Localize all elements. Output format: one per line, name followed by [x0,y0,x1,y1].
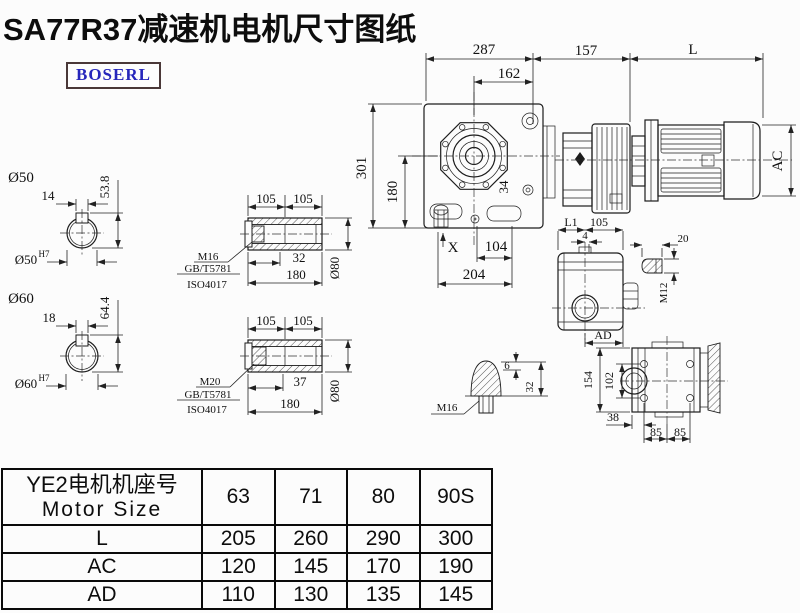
shaft50-label: Ø50 [8,170,34,186]
thread-M16-breather: M16 [437,402,458,414]
standard-gb-bottom: GB/T5781 [184,389,231,401]
dim-L: L [688,42,697,58]
motor-assembly-view [555,120,792,213]
row-label-AD: AD [2,581,202,609]
table-row-AC: AC 120 145 170 190 [2,553,492,581]
x-plug-bolt [434,205,448,227]
dim-18: 18 [43,310,56,325]
row-label-AC: AC [2,553,202,581]
dim-d80-top: Ø80 [327,257,342,279]
dim-154: 154 [581,371,595,389]
shaft-section-d60: Ø60 18 64.4 Ø60 H7 [8,291,123,391]
header-size-71: 71 [275,469,348,525]
gearbox-rear-view: 154 102 38 85 85 [581,336,728,443]
shaft-section-d50: Ø50 14 53.8 Ø50 H7 [8,170,123,267]
cell-AD-80: 135 [347,581,420,609]
drawing-sheet: SA77R37减速机电机尺寸图纸 BOSERL [0,0,800,613]
dim-34: 34 [496,180,511,194]
dim-301: 301 [354,157,370,180]
dim-105-side: 105 [590,215,608,229]
dim-105b-bottom: 105 [293,313,313,328]
dim-64-4: 64.4 [97,296,112,319]
cell-L-80: 290 [347,525,420,553]
main-view-dimensions: 287 162 157 L 301 180 34 X 104 204 [354,42,796,288]
cell-AC-71: 145 [275,553,348,581]
header-motor-size: YE2电机机座号 Motor Size [2,469,202,525]
standard-gb-top: GB/T5781 [184,263,231,275]
motor-dimension-table: YE2电机机座号 Motor Size 63 71 80 90S L 205 2… [1,468,493,610]
dim-20: 20 [678,233,690,245]
bore50-tolerance: H7 [39,249,50,259]
dim-14: 14 [42,188,56,203]
dim-4: 4 [582,230,588,242]
dim-180-top: 180 [286,267,306,282]
marker-x: X [448,240,459,256]
gearbox-front-view [412,92,560,246]
dim-AD: AD [594,328,612,342]
dim-85b: 85 [674,425,686,439]
standard-iso-bottom: ISO4017 [187,404,227,416]
dim-180: 180 [385,181,401,204]
bore60-label: Ø60 [15,376,37,391]
dim-162: 162 [498,66,521,82]
diamond-mark [575,152,585,166]
cell-L-63: 205 [202,525,275,553]
table-row-L: L 205 260 290 300 [2,525,492,553]
cell-L-71: 260 [275,525,348,553]
motor-body [645,120,760,201]
cell-AC-80: 170 [347,553,420,581]
dim-37-bottom: 37 [294,374,308,389]
bolt-label-m16: M16 [198,251,219,263]
dim-d80-bottom: Ø80 [327,380,342,402]
bore60-tolerance: H7 [39,373,50,383]
dim-L1: L1 [564,215,577,229]
standard-iso-top: ISO4017 [187,279,227,291]
dim-105a-top: 105 [256,191,276,206]
dim-AC: AC [770,151,786,172]
table-row-AD: AD 110 130 135 145 [2,581,492,609]
dim-32-top: 32 [293,250,306,265]
dim-104: 104 [485,239,508,255]
header-size-63: 63 [202,469,275,525]
dim-157: 157 [575,43,598,59]
header-motor-size-cn: YE2电机机座号 [3,472,201,497]
bore50-label: Ø50 [15,252,37,267]
gearbox-side-view: L1 105 4 AD [552,215,645,347]
dim-38: 38 [607,410,619,424]
dim-102: 102 [602,372,616,390]
cell-L-90s: 300 [420,525,493,553]
header-size-80: 80 [347,469,420,525]
plug-detail-view: 20 M12 [630,233,689,303]
dim-6: 6 [504,360,510,372]
dim-204: 204 [463,267,486,283]
dim-85a: 85 [650,425,662,439]
shaft60-label: Ø60 [8,291,34,307]
cell-AD-71: 130 [275,581,348,609]
dim-32-breather: 32 [524,382,536,393]
bolt-label-m20: M20 [200,376,221,388]
header-motor-size-en: Motor Size [3,498,201,522]
table-header-row: YE2电机机座号 Motor Size 63 71 80 90S [2,469,492,525]
row-label-L: L [2,525,202,553]
hollow-shaft-top: 105 105 32 180 Ø80 M16 GB/T5781 ISO4017 [177,191,352,291]
cell-AD-63: 110 [202,581,275,609]
dim-180-bottom: 180 [280,396,300,411]
cell-AC-90s: 190 [420,553,493,581]
hollow-shaft-bottom: 105 105 37 180 Ø80 M20 GB/T5781 ISO4017 [177,313,352,416]
cell-AD-90s: 145 [420,581,493,609]
dim-105b-top: 105 [293,191,313,206]
breather-detail-view: M16 6 32 [431,352,548,414]
cell-AC-63: 120 [202,553,275,581]
thread-M12: M12 [658,283,670,304]
dim-53-8: 53.8 [97,176,112,199]
dim-287: 287 [473,42,496,58]
header-size-90s: 90S [420,469,493,525]
dim-105a-bottom: 105 [256,313,276,328]
